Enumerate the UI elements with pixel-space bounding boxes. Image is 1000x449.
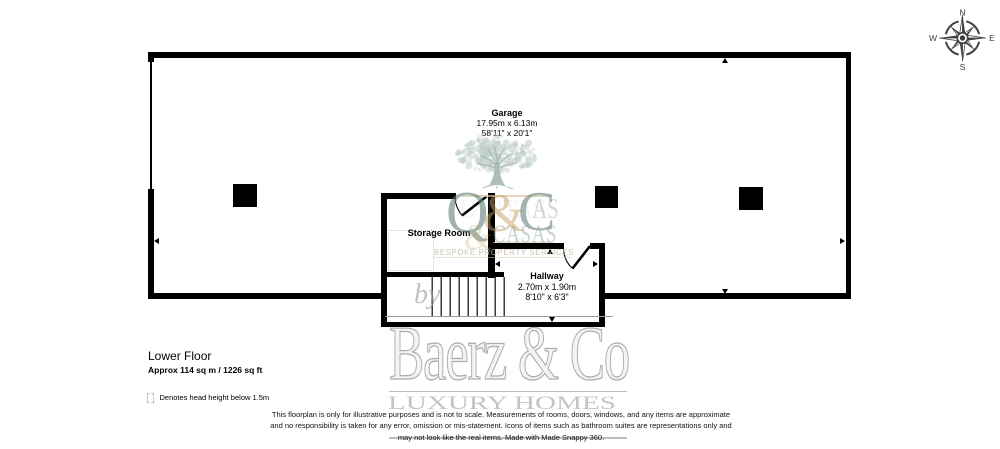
svg-text:Baerz & Co: Baerz & Co xyxy=(389,315,629,390)
svg-text:W: W xyxy=(929,33,938,43)
svg-text:S: S xyxy=(960,62,966,72)
svg-text:E: E xyxy=(989,33,995,43)
svg-text:N: N xyxy=(959,7,965,17)
